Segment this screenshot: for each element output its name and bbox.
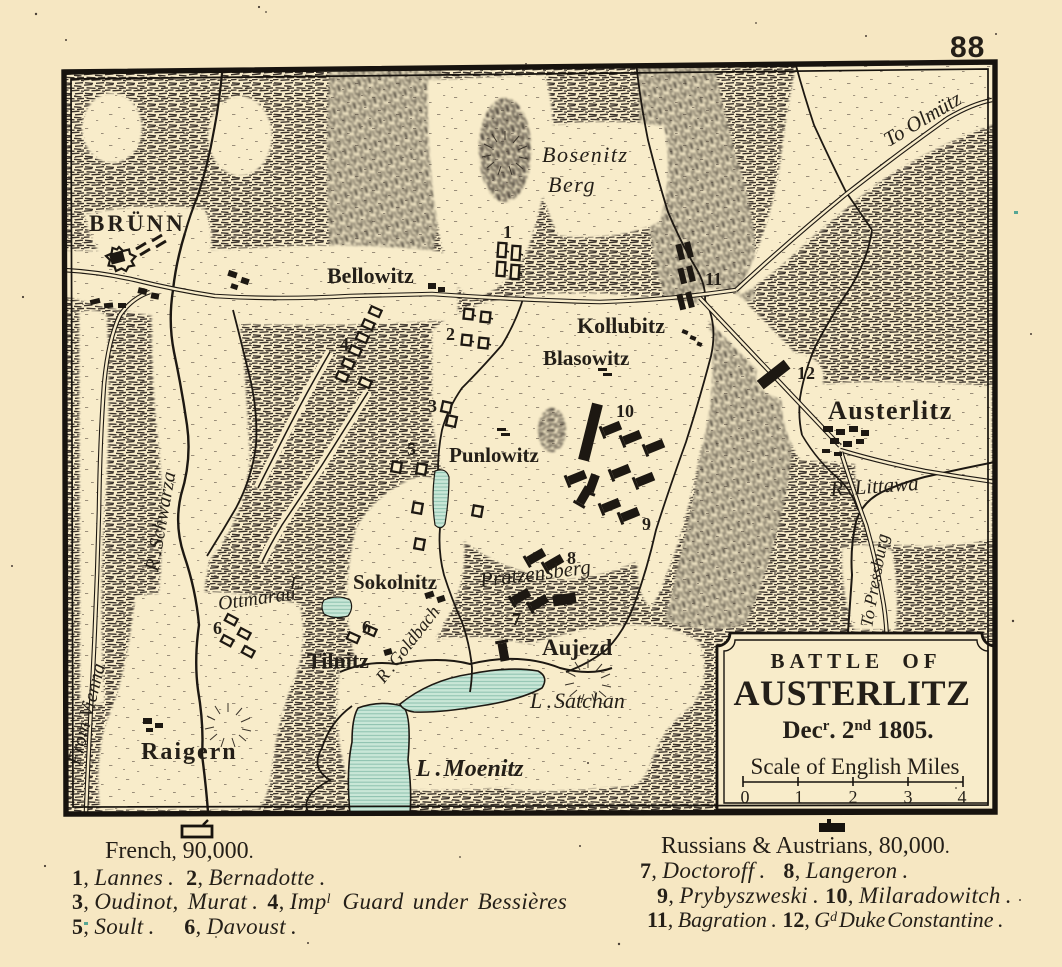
svg-text:1, Lannes . 2, Bernadotte .: 1, Lannes . 2, Bernadotte . <box>72 865 326 890</box>
svg-text:French, 90,000.: French, 90,000. <box>105 838 254 864</box>
svg-text:7: 7 <box>512 609 521 629</box>
svg-text:Punlowitz: Punlowitz <box>449 443 539 467</box>
svg-text:4: 4 <box>958 787 967 807</box>
svg-text:0: 0 <box>741 787 750 807</box>
svg-text:L . Moenitz: L . Moenitz <box>415 756 524 782</box>
svg-text:Austerlitz: Austerlitz <box>828 396 953 425</box>
svg-text:2: 2 <box>849 787 858 807</box>
svg-text:Raigern: Raigern <box>141 739 238 765</box>
svg-text:Tilnitz: Tilnitz <box>307 648 369 673</box>
svg-text:5, Soult . 6, Davoust .: 5, Soult . 6, Davoust . <box>72 914 297 939</box>
svg-text:1: 1 <box>795 787 804 807</box>
svg-text:2: 2 <box>446 324 455 344</box>
svg-text:88: 88 <box>950 31 985 64</box>
svg-text:4: 4 <box>340 334 349 354</box>
svg-text:BATTLE OF: BATTLE OF <box>770 649 941 673</box>
svg-text:9, Prybyszweski . 10, Milarado: 9, Prybyszweski . 10, Milaradowitch . <box>657 883 1012 908</box>
svg-text:9: 9 <box>642 514 651 534</box>
svg-text:5: 5 <box>407 439 416 459</box>
svg-text:Bosenitz: Bosenitz <box>542 142 629 167</box>
svg-text:Bellowitz: Bellowitz <box>327 263 414 288</box>
svg-text:Kollubitz: Kollubitz <box>577 313 665 338</box>
svg-text:3, Oudinot, Murat . 4, Impl G: 3, Oudinot, Murat . 4, Impl Guard under … <box>72 889 567 914</box>
svg-text:Berg: Berg <box>548 172 596 197</box>
svg-text:6: 6 <box>213 618 222 638</box>
svg-text:Blasowitz: Blasowitz <box>543 346 629 370</box>
svg-text:11: 11 <box>705 269 722 289</box>
svg-text:BRÜNN: BRÜNN <box>89 211 186 236</box>
svg-text:6: 6 <box>362 617 371 637</box>
svg-text:AUSTERLITZ: AUSTERLITZ <box>733 673 970 713</box>
svg-text:10: 10 <box>616 401 634 421</box>
svg-text:11, Bagration . 12, Gd Duke Co: 11, Bagration . 12, Gd Duke Constantine … <box>647 907 1003 932</box>
svg-text:Sokolnitz: Sokolnitz <box>353 570 437 594</box>
svg-text:7, Doctoroff . 8, Langeron .: 7, Doctoroff . 8, Langeron . <box>640 858 909 883</box>
svg-text:3: 3 <box>428 396 437 416</box>
svg-text:3: 3 <box>904 787 913 807</box>
svg-text:Scale of English Miles: Scale of English Miles <box>751 754 960 779</box>
svg-text:1: 1 <box>503 222 512 242</box>
svg-text:12: 12 <box>797 363 815 383</box>
svg-text:Russians & Austrians, 80,000.: Russians & Austrians, 80,000. <box>661 833 950 859</box>
svg-text:L . Satchan: L . Satchan <box>529 688 625 713</box>
svg-text:8: 8 <box>567 548 576 568</box>
svg-text:Aujezd: Aujezd <box>542 635 612 660</box>
